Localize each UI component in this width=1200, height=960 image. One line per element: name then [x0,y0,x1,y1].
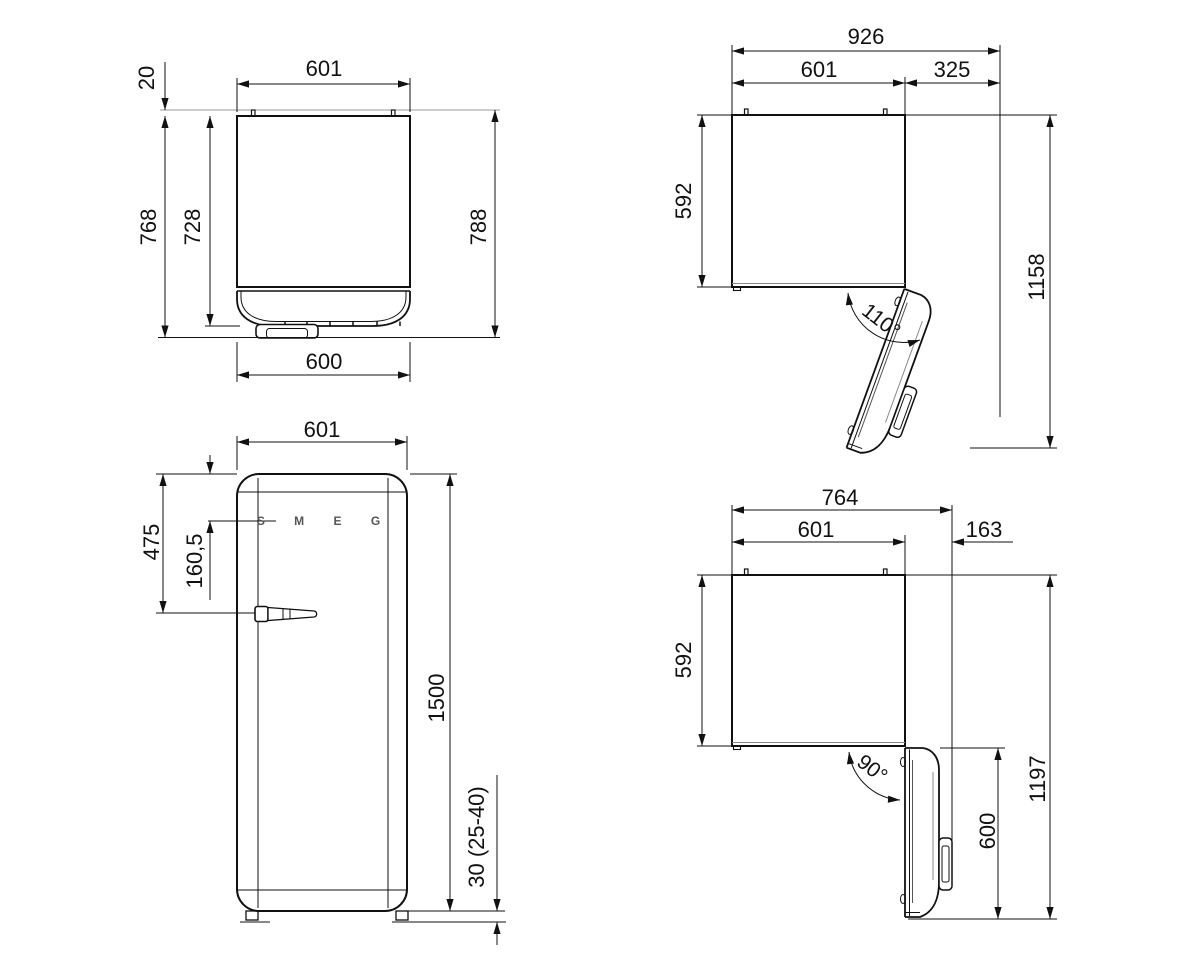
dim-bottom-width-600: 600 [306,351,343,373]
dim-overall-width-926: 926 [848,26,885,48]
dim-depth-728: 728 [182,209,204,246]
dim-body-width-601-110: 601 [801,59,838,81]
dim-door-projection-325: 325 [934,59,971,81]
dim-top-width-601: 601 [306,58,343,80]
top-view-door-open-110 [697,45,1057,464]
dim-door-projection-163: 163 [966,519,1003,541]
dim-feet-height-30: 30 (25-40) [466,786,488,888]
dim-body-depth-592-90: 592 [673,642,695,679]
dim-rear-clearance-20: 20 [136,66,158,90]
drawing-canvas [0,0,1200,960]
dim-body-width-601-90: 601 [798,519,835,541]
smeg-logo: S M E G [257,515,393,527]
dim-top-to-handle-475: 475 [141,524,163,561]
dim-height-1500: 1500 [426,674,448,723]
top-view-door-open-90 [697,505,1057,919]
technical-drawing-page: 601 20 768 728 788 600 926 601 325 592 1… [0,0,1200,960]
dim-overall-width-764: 764 [822,487,859,509]
dim-overall-depth-1158: 1158 [1026,253,1048,300]
dim-depth-788: 788 [468,209,490,246]
top-view-door-closed [158,62,500,382]
dim-door-width-600: 600 [977,813,999,850]
front-view [156,436,506,945]
dim-overall-depth-1197: 1197 [1027,755,1049,802]
dim-front-width-601: 601 [304,419,341,441]
dim-body-depth-592-110: 592 [673,183,695,220]
dim-top-to-logo-160-5: 160,5 [184,533,206,588]
dim-depth-768: 768 [138,209,160,246]
